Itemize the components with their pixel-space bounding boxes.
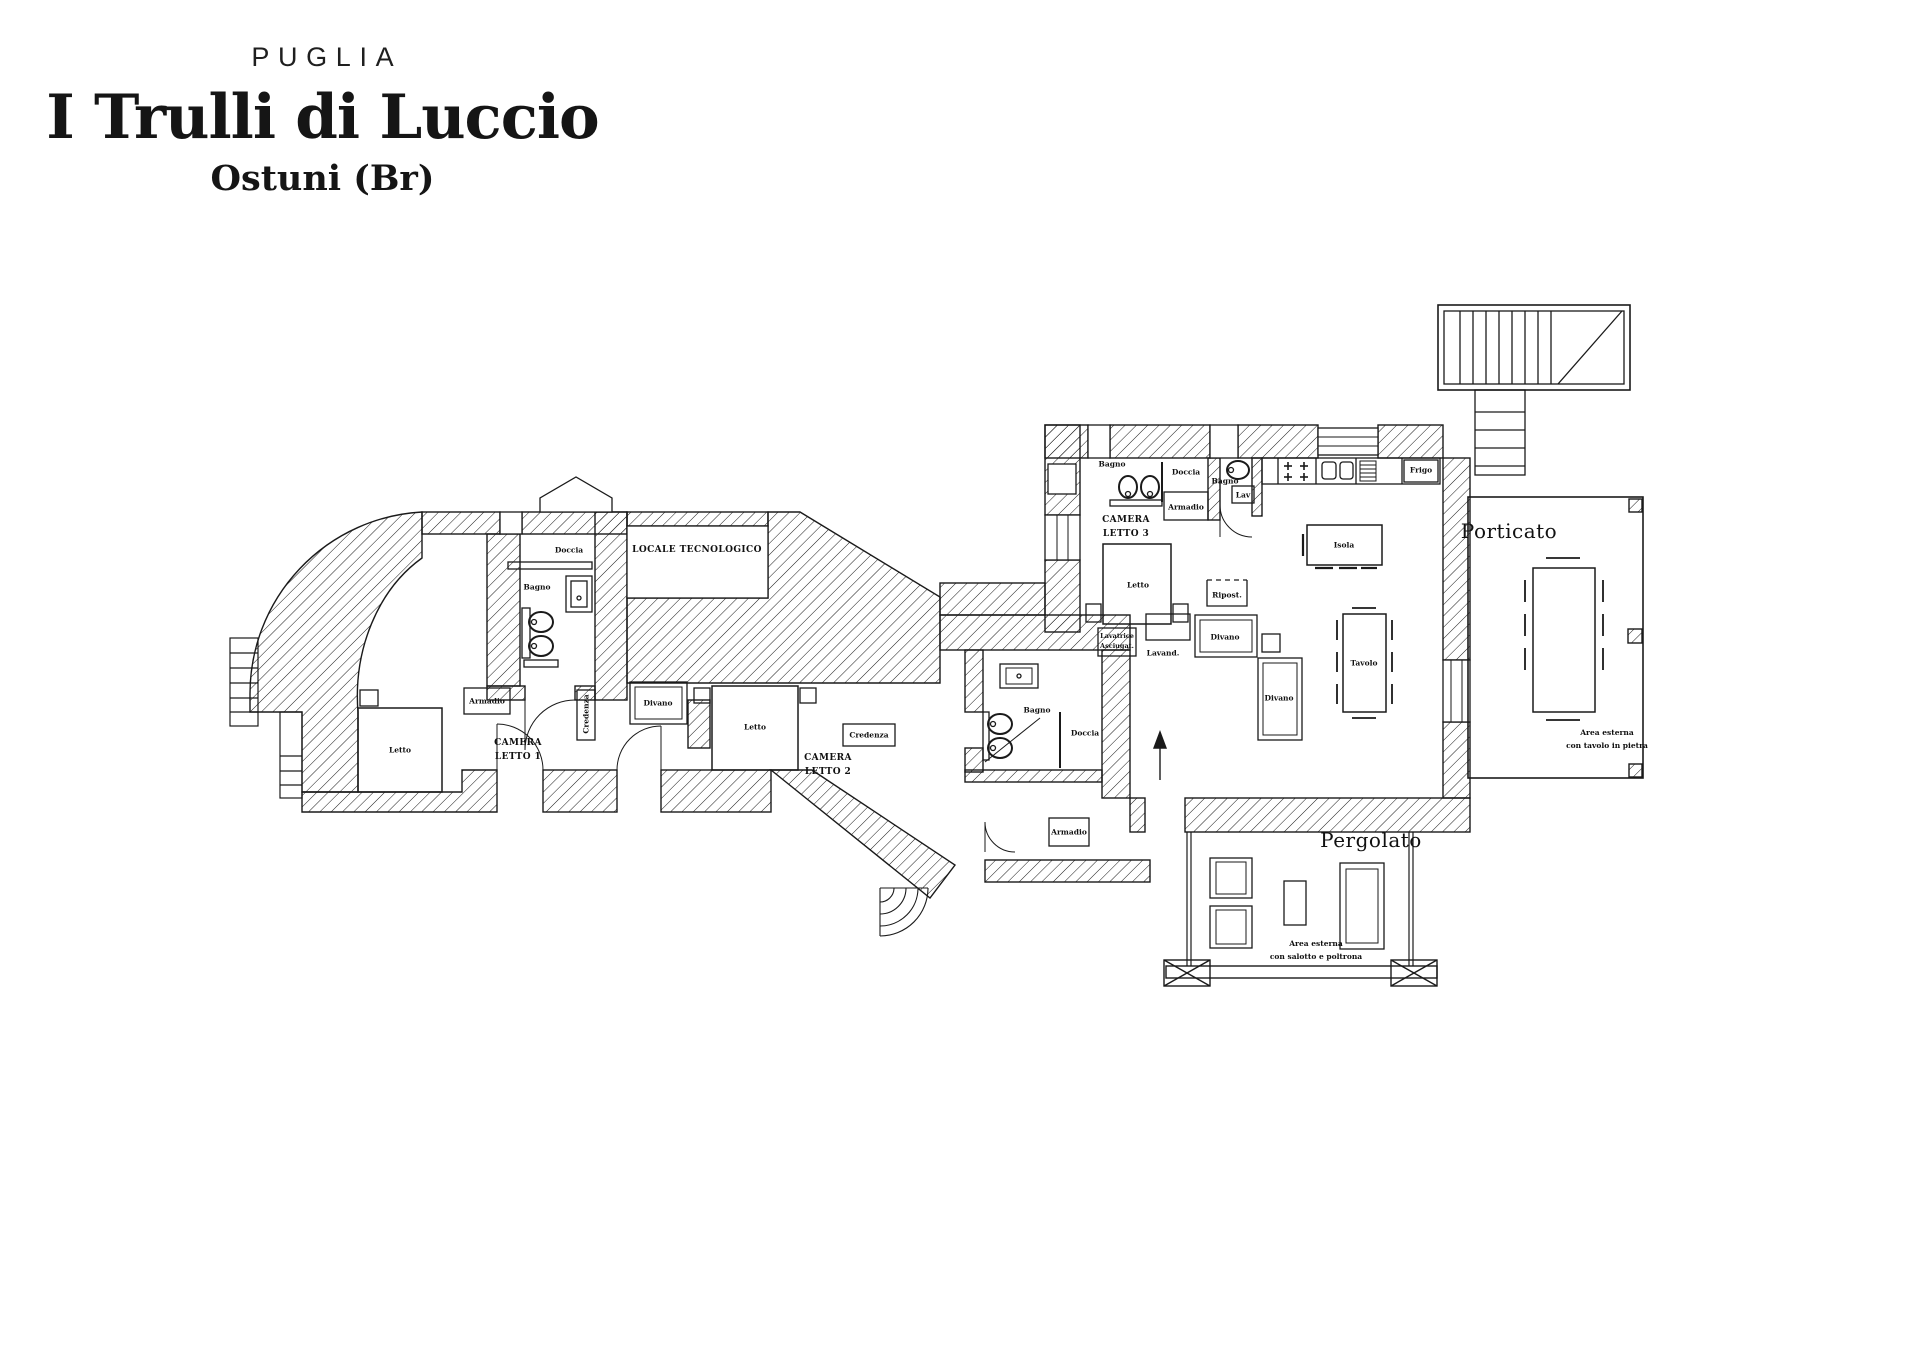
pergola-beam (1166, 966, 1437, 978)
window-west (1045, 515, 1080, 560)
pergola-posts (1187, 832, 1413, 966)
gable-vestibule (540, 477, 612, 512)
nightstand-cl2-right (800, 688, 816, 703)
wc-bagno4 (1227, 461, 1249, 479)
window-left-wing (500, 512, 522, 534)
window-north-1 (1088, 425, 1110, 458)
sofa-cl2 (630, 682, 687, 724)
nightstand-cl3-right (1173, 604, 1188, 622)
wall-arc-left (250, 512, 422, 792)
dining-table (1343, 614, 1386, 712)
floor-plan (0, 0, 1920, 1357)
wc-bagno1 (529, 612, 553, 632)
wardrobe-cl3 (1164, 492, 1208, 520)
side-table-living (1262, 634, 1280, 652)
page: PUGLIA I Trulli di Luccio Ostuni (Br) (0, 0, 1920, 1357)
bed-cl3 (1103, 544, 1171, 624)
bench-bagno1 (524, 660, 558, 667)
pergola-table (1284, 881, 1306, 925)
door-east-porticato (1443, 660, 1470, 722)
kitchen-island (1307, 525, 1382, 565)
stove-burners (1284, 462, 1308, 481)
bidet-bagno2 (988, 738, 1012, 758)
credenza-cl2 (843, 724, 895, 746)
wc-bagno2 (988, 714, 1012, 734)
porticato-outline (1468, 497, 1643, 778)
window-north-3 (1318, 428, 1378, 455)
bidet-bagno3 (1141, 476, 1159, 498)
stairs-top-right (1438, 305, 1630, 475)
stone-table (1533, 568, 1595, 712)
laundry-sink (1146, 614, 1190, 640)
dishwasher (1360, 461, 1376, 481)
pergola-sofa (1340, 863, 1384, 949)
sofa-living-1 (1195, 615, 1257, 657)
pergola-post-base-right (1391, 960, 1437, 986)
room-locale-tecnologico (627, 526, 768, 598)
outdoor-layer (1164, 497, 1643, 986)
dining-chairs (1337, 608, 1392, 718)
sofa-living-2 (1258, 658, 1302, 740)
nightstand-cl1 (360, 690, 378, 706)
storage-ripostiglio (1207, 580, 1247, 606)
porticato-chairs (1525, 558, 1603, 720)
sink-bagno4 (1232, 486, 1254, 503)
wc-backwall-bagno1 (522, 608, 530, 658)
wc-backwall-bagno2 (983, 712, 989, 760)
shelf-bagno3 (1110, 500, 1162, 506)
bed-cl1 (358, 708, 442, 792)
kitchen-sink-2 (1340, 462, 1353, 479)
fridge (1404, 460, 1438, 482)
steps-fan-entry (880, 888, 928, 936)
window-north-2 (1210, 425, 1238, 458)
bidet-bagno1 (529, 636, 553, 656)
wardrobe-entry (1049, 818, 1089, 846)
walls-layer (250, 425, 1642, 898)
wc-bagno3 (1119, 476, 1137, 498)
entry-arrow (1154, 732, 1166, 780)
bed-cl2 (712, 686, 798, 770)
kitchen-sink-1 (1322, 462, 1336, 479)
window-niche-bagno3 (1048, 464, 1076, 494)
